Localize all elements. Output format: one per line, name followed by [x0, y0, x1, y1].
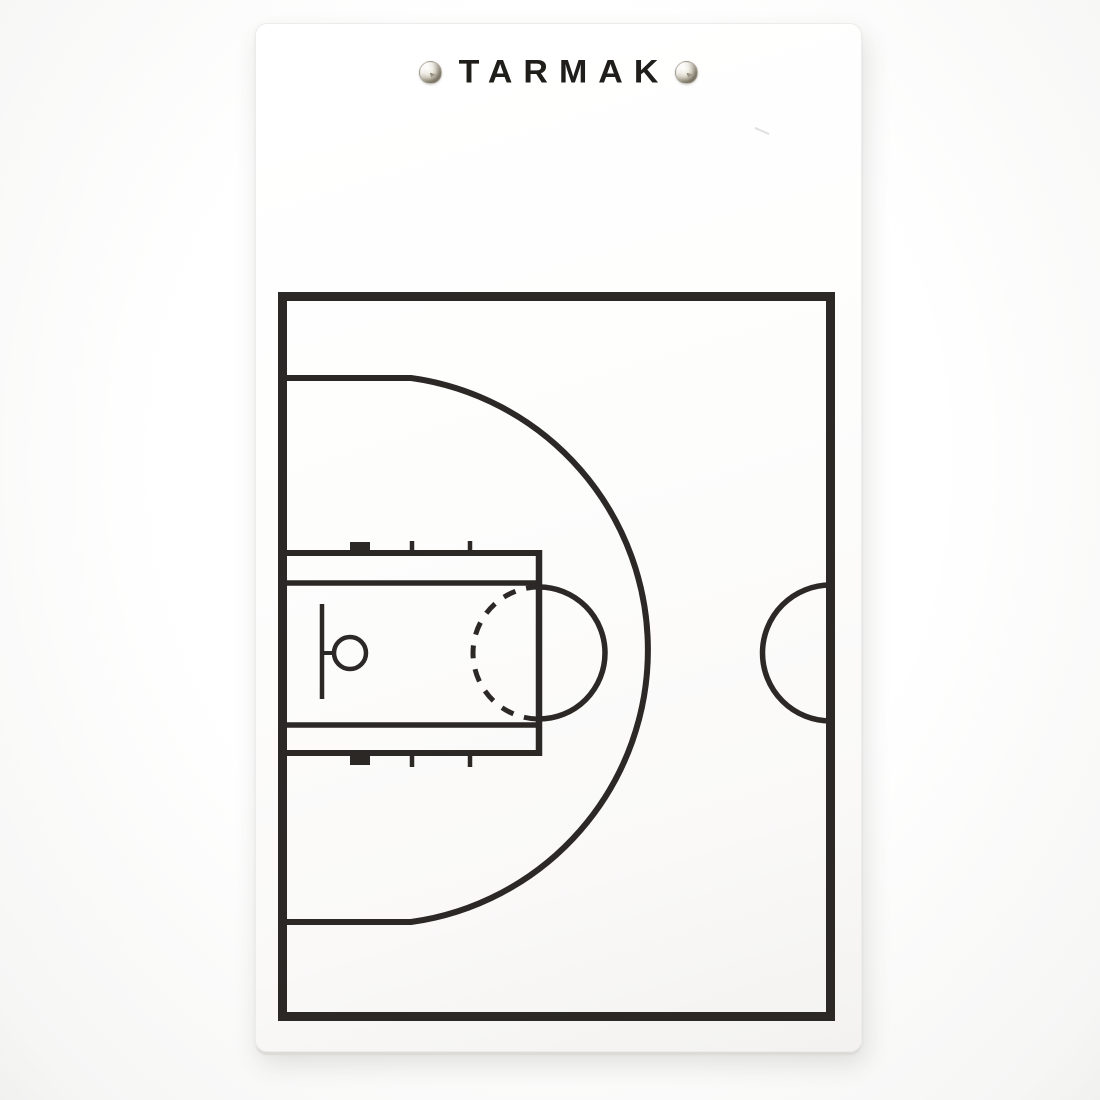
free-throw-circle-dashed-half: [473, 587, 539, 719]
lane-block-top: [350, 542, 370, 554]
lane-block-bottom: [350, 753, 370, 765]
tactics-board: TARMAK: [255, 23, 862, 1052]
free-throw-circle-solid-half: [539, 587, 605, 719]
half-court-diagram: [256, 24, 861, 1051]
rim: [334, 637, 366, 669]
photo-backdrop: TARMAK: [0, 0, 1100, 1100]
half-court-center-circle: [763, 585, 831, 721]
